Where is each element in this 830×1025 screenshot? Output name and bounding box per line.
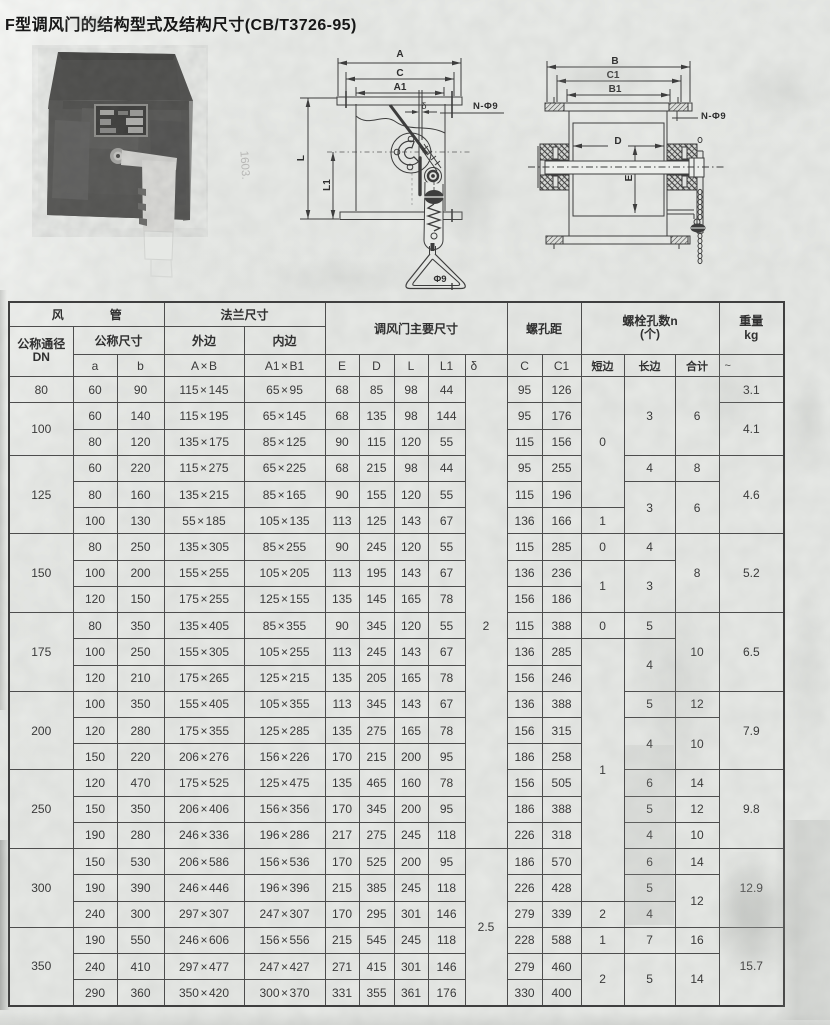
svg-text:A1: A1: [394, 82, 407, 93]
svg-text:L1: L1: [322, 179, 333, 191]
svg-text:N-Φ9: N-Φ9: [473, 101, 498, 112]
svg-text:Φ9: Φ9: [433, 274, 446, 285]
svg-text:C: C: [396, 68, 403, 79]
svg-text:D: D: [614, 136, 621, 147]
svg-text:B: B: [611, 56, 618, 67]
svg-text:N-Φ9: N-Φ9: [701, 111, 726, 122]
svg-text:δ: δ: [421, 101, 426, 111]
svg-text:L: L: [296, 155, 307, 161]
svg-text:B1: B1: [609, 84, 622, 95]
svg-text:E: E: [624, 174, 635, 181]
svg-text:C1: C1: [607, 70, 620, 81]
svg-text:A: A: [396, 49, 403, 60]
